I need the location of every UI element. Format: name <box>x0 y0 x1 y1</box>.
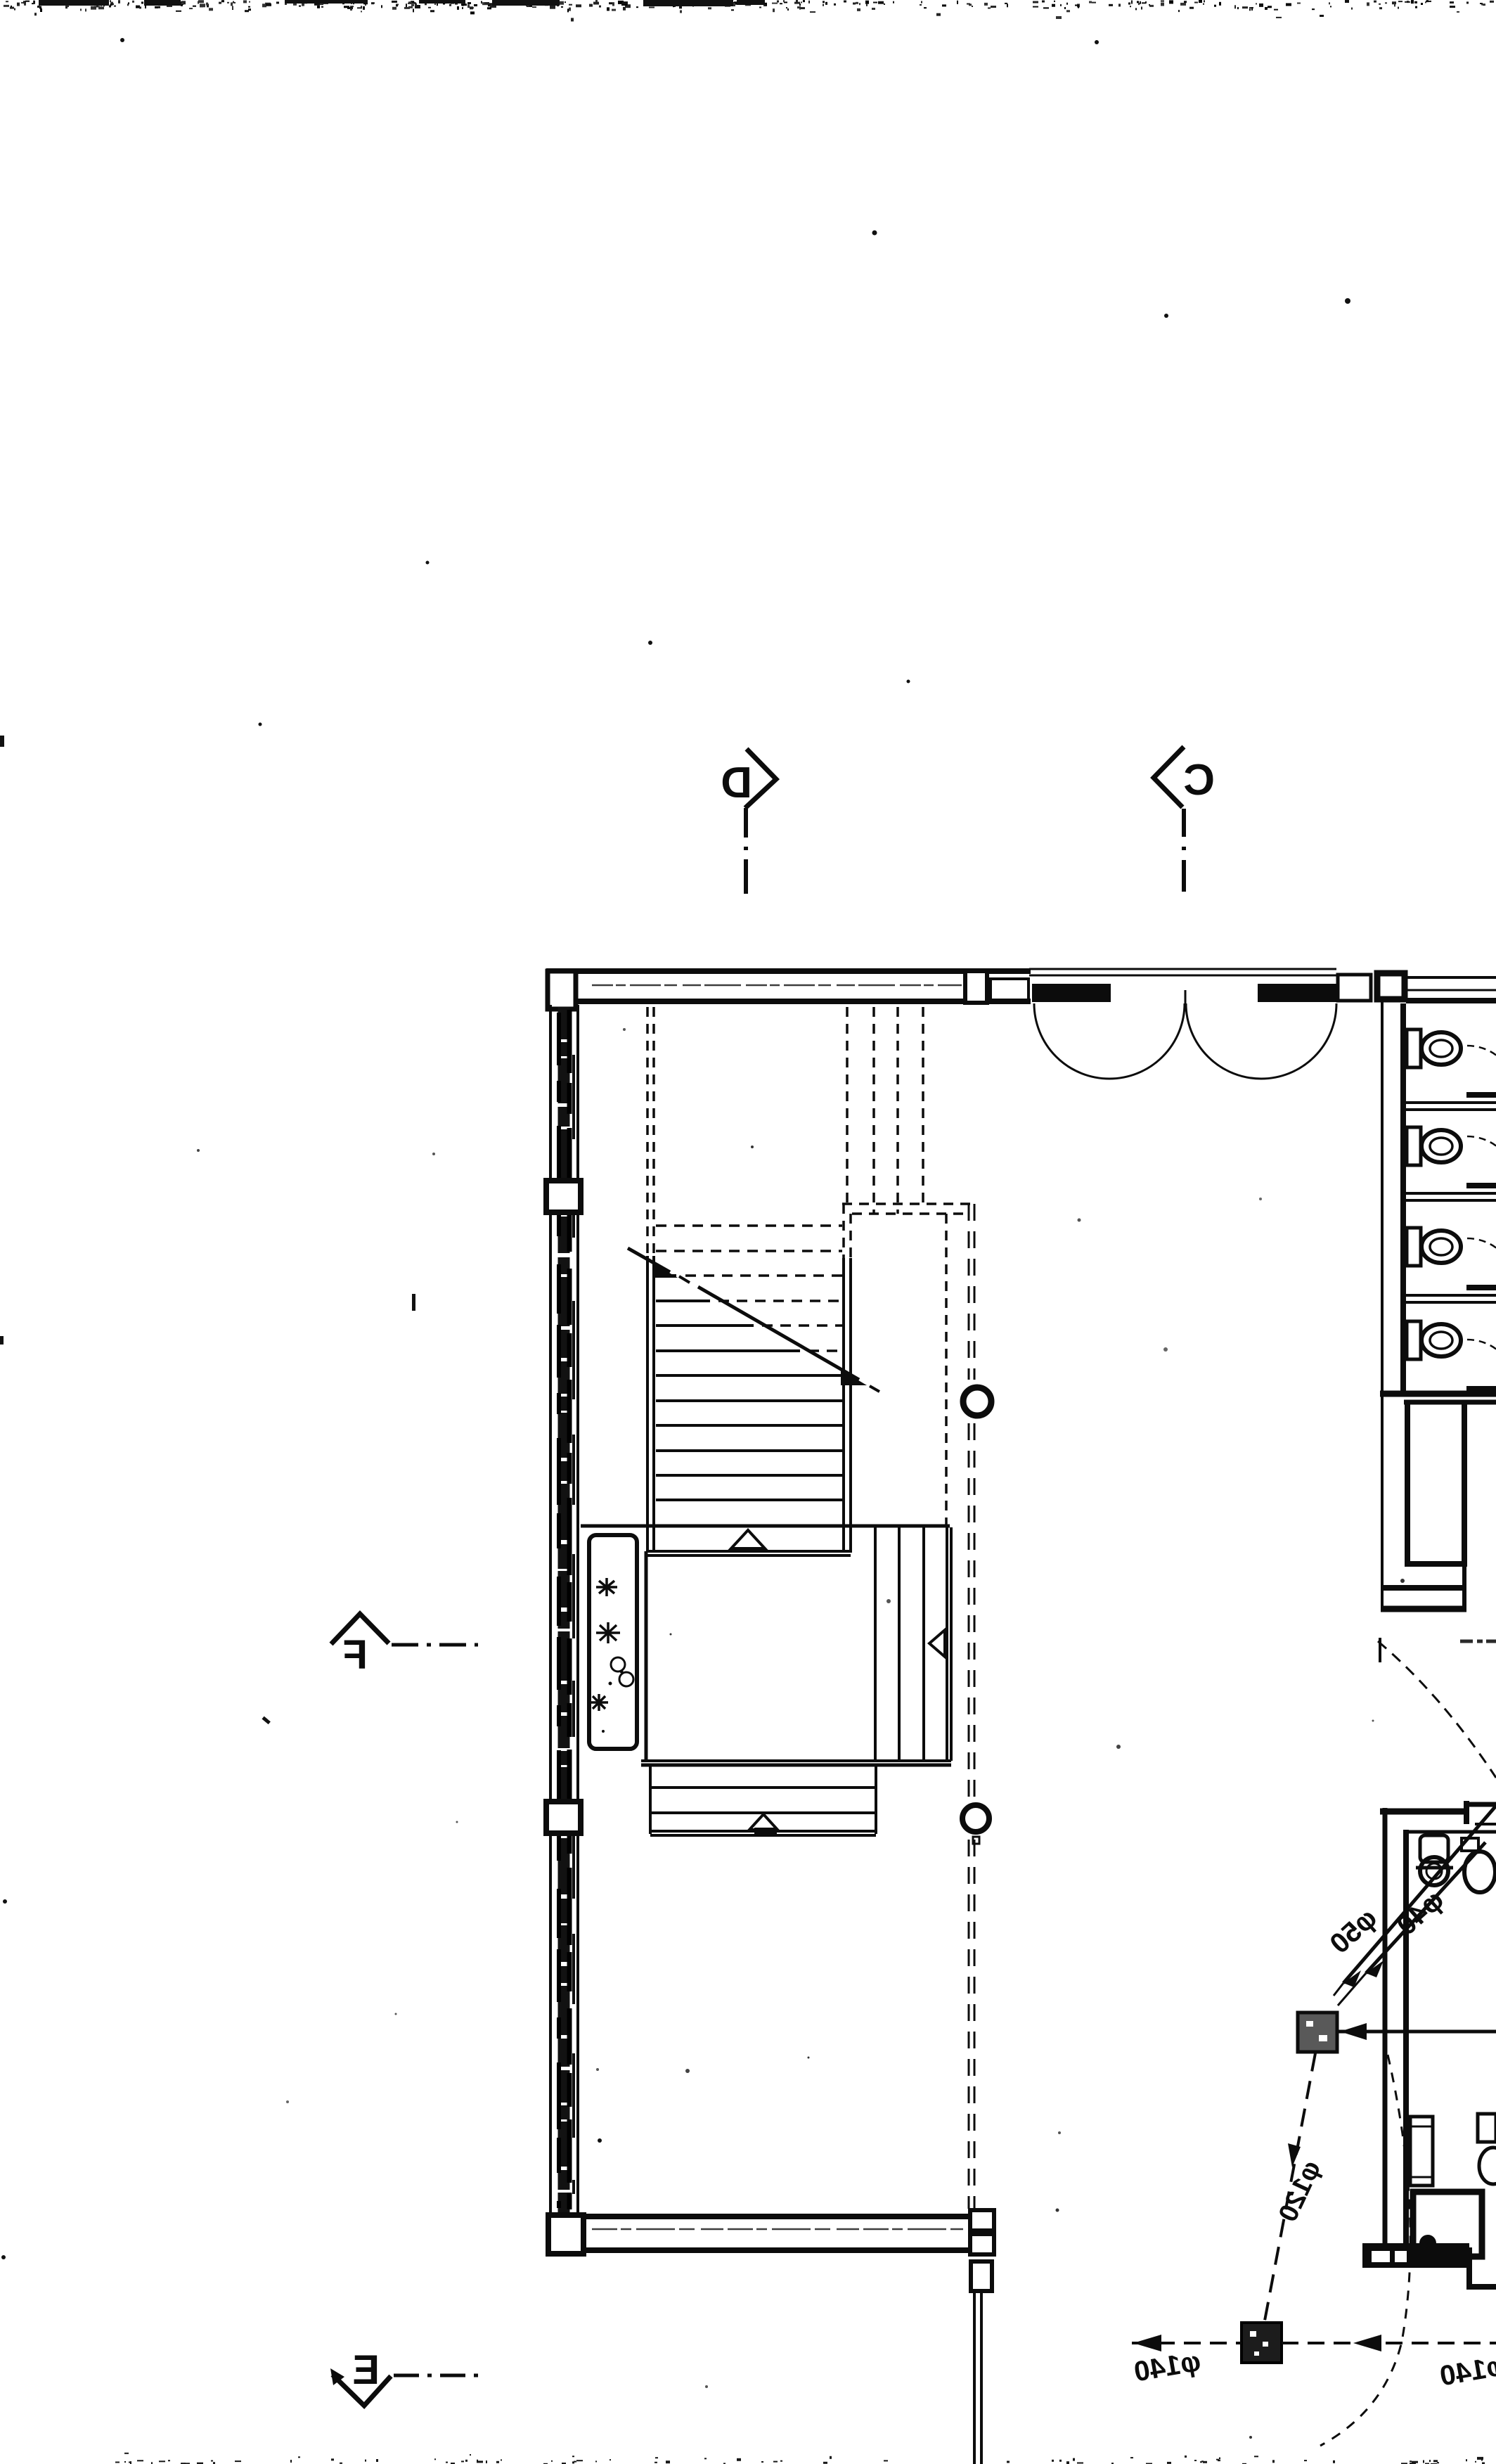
svg-text:φ120: φ120 <box>1273 2156 1327 2226</box>
svg-text:φ140: φ140 <box>1438 2350 1496 2392</box>
svg-text:φ50: φ50 <box>1324 1902 1383 1960</box>
svg-text:C: C <box>1183 756 1215 804</box>
svg-text:φ140: φ140 <box>1132 2346 1204 2388</box>
svg-text:E: E <box>352 2347 380 2393</box>
svg-text:D: D <box>721 759 752 807</box>
svg-text:F: F <box>343 1632 368 1678</box>
